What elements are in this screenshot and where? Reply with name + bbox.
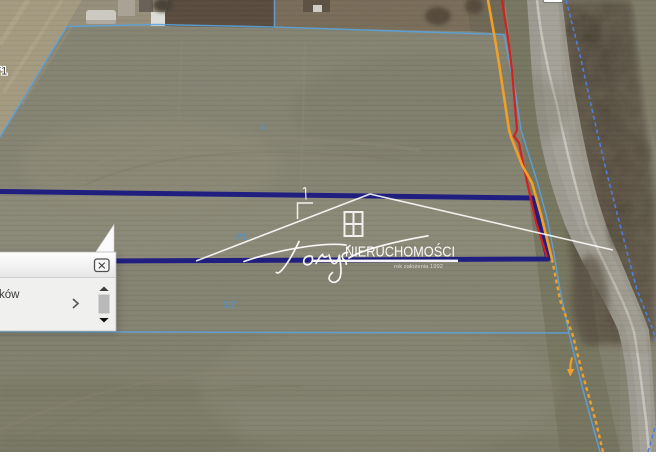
svg-text:rok założenia 1992: rok założenia 1992 [394,264,443,270]
svg-text:3/2: 3/2 [223,300,236,310]
svg-text:71: 71 [0,66,7,78]
svg-text:3/1: 3/1 [234,232,247,242]
svg-text:3: 3 [260,122,265,132]
svg-text:ków: ków [0,289,20,301]
svg-text:NIERUCHOMOŚCI: NIERUCHOMOŚCI [345,243,455,261]
